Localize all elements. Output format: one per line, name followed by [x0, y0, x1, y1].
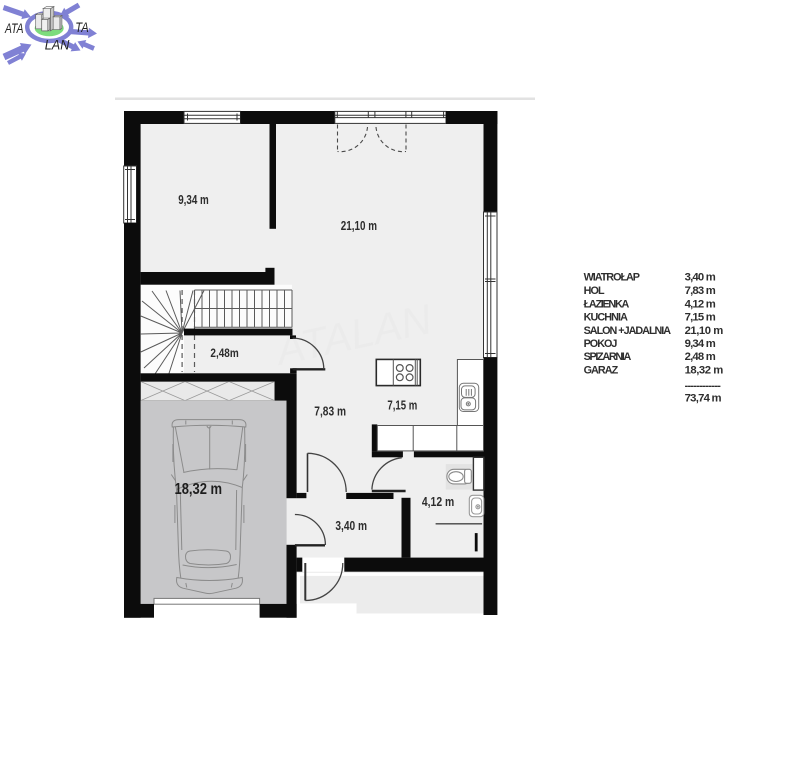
svg-text:POKOJ: POKOJ — [584, 338, 618, 350]
svg-text:9,34 m: 9,34 m — [685, 338, 716, 350]
svg-text:ŁAZIENKA: ŁAZIENKA — [584, 298, 630, 310]
svg-text:7,83 m: 7,83 m — [685, 285, 716, 297]
svg-text:21,10 m: 21,10 m — [685, 325, 724, 337]
svg-text:3,40 m: 3,40 m — [685, 272, 716, 284]
svg-text:7,15 m: 7,15 m — [387, 399, 417, 413]
svg-text:TA: TA — [75, 19, 89, 35]
svg-text:KUCHNIA: KUCHNIA — [584, 311, 628, 323]
svg-text:7,15 m: 7,15 m — [685, 311, 716, 323]
svg-text:2,48 m: 2,48 m — [685, 351, 716, 363]
svg-text:------------: ------------ — [685, 380, 722, 392]
svg-text:ATA: ATA — [4, 20, 23, 36]
svg-text:18,32 m: 18,32 m — [685, 365, 724, 377]
svg-text:SALON +JADALNIA: SALON +JADALNIA — [584, 325, 672, 337]
svg-text:4,12 m: 4,12 m — [685, 298, 716, 310]
svg-text:3,40 m: 3,40 m — [335, 519, 367, 533]
svg-text:GARAZ: GARAZ — [584, 365, 619, 377]
svg-text:7,83 m: 7,83 m — [314, 405, 346, 419]
svg-text:SPIZARNIA: SPIZARNIA — [584, 351, 632, 363]
svg-text:HOL: HOL — [584, 285, 605, 297]
svg-text:LAN: LAN — [45, 37, 70, 53]
svg-text:4,12 m: 4,12 m — [422, 495, 454, 509]
svg-text:9,34 m: 9,34 m — [178, 193, 209, 207]
svg-text:WIATROŁAP: WIATROŁAP — [584, 272, 640, 284]
svg-text:18,32 m: 18,32 m — [175, 481, 223, 498]
svg-text:73,74 m: 73,74 m — [685, 392, 722, 404]
svg-text:21,10 m: 21,10 m — [341, 219, 377, 233]
svg-text:2,48m: 2,48m — [210, 346, 238, 360]
